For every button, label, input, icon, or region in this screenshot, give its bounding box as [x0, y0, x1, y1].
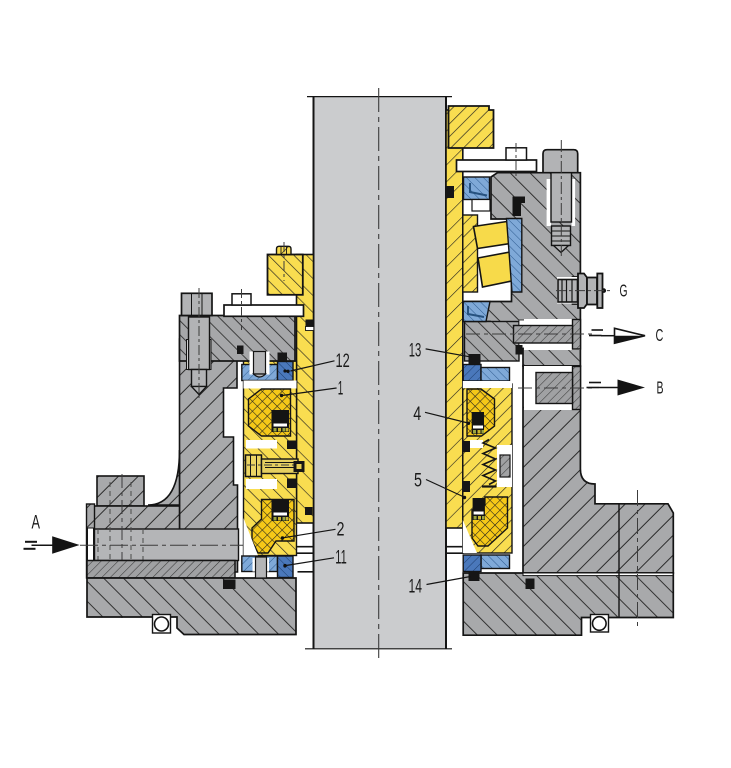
svg-text:G: G	[620, 280, 628, 300]
svg-text:2: 2	[337, 519, 345, 540]
svg-text:5: 5	[414, 471, 422, 492]
svg-text:14: 14	[409, 576, 423, 597]
svg-text:4: 4	[413, 404, 421, 425]
svg-text:13: 13	[409, 341, 422, 362]
svg-text:1: 1	[338, 378, 344, 399]
svg-text:11: 11	[335, 548, 347, 569]
svg-text:B: B	[657, 377, 664, 397]
svg-text:C: C	[656, 325, 664, 345]
svg-text:12: 12	[336, 351, 350, 372]
svg-text:A: A	[32, 513, 41, 534]
